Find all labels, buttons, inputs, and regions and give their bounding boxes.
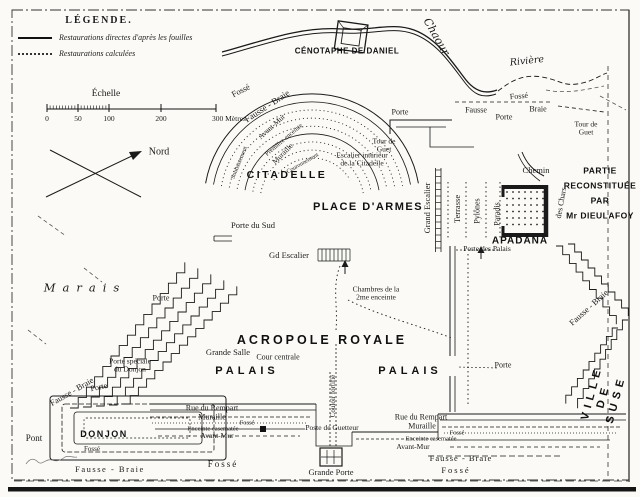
legend-item-restaurations-directes: Restaurations directes d'après les fouil… xyxy=(18,33,238,42)
east-walls xyxy=(450,246,497,412)
label-fausse-braie-sud: Fausse - Braie xyxy=(75,465,145,475)
north-gate-walls xyxy=(390,102,604,147)
label-fosse-nord: Fossé xyxy=(510,92,529,103)
scale-tick-300-M-tres-: 300 Mètres. xyxy=(212,114,248,123)
compass-north xyxy=(46,150,142,197)
label-porte-ouest: Porte xyxy=(153,295,170,304)
scale-heading: Échelle xyxy=(66,89,146,99)
susa-map-page: LÉGENDE. Restaurations directes d'après … xyxy=(0,0,640,497)
label-marais: Marais xyxy=(44,282,127,295)
label-partie-reconstituee: PARTIE RECONSTITUÉE PAR Mr DIEULAFOY xyxy=(564,163,637,223)
label-cenotaphe-de-daniel: CÉNOTAPHE DE DANIEL xyxy=(295,48,399,57)
scale-tick-100: 100 xyxy=(103,114,114,123)
dotted-line-swatch xyxy=(18,53,52,55)
dotted-paths xyxy=(214,236,452,338)
label-fosse-sud-ouest: Fossé xyxy=(208,459,239,469)
grand-staircase xyxy=(436,168,442,252)
label-gd-escalier: Gd Escalier xyxy=(269,251,309,261)
label-tour-de-guet-ne: Tour de Guet xyxy=(574,121,597,138)
label-fosse-petit-ouest: Fossé xyxy=(240,419,255,426)
label-muraille-ouest: Muraille xyxy=(198,414,226,423)
legend-heading: LÉGENDE. xyxy=(18,15,180,26)
label-chemin: Chemin xyxy=(523,166,550,176)
label-escalier-interieur: Escalier intérieur de la Citadelle xyxy=(336,152,387,169)
label-fausse-nord: Fausse xyxy=(465,107,487,116)
label-porte-speciale-donjon: Porte spéciale du Donjon xyxy=(109,358,151,375)
label-fosse-sud-est: Fossé xyxy=(441,466,470,476)
legend-item-restaurations-calculees: Restaurations calculées xyxy=(18,49,238,58)
label-fosse-donjon: Fossé xyxy=(84,446,100,454)
label-grand-escalier-v: Grand Escalier xyxy=(423,183,433,234)
label-braie-nord: Braie xyxy=(529,106,546,115)
label-fausse-braie-sud-est: Fausse - Braie xyxy=(430,454,493,464)
label-terrasse: Terrasse xyxy=(453,195,463,223)
label-porte-nord-est: Porte xyxy=(496,114,513,123)
label-grande-salle: Grande Salle xyxy=(206,348,250,358)
label-couloir-fortifie: Couloir fortifié xyxy=(330,375,338,418)
label-pont: Pont xyxy=(26,433,43,443)
label-chambres: Chambres de la 2me enceinte xyxy=(353,286,400,303)
label-avant-mur-ouest: Avant-Mur xyxy=(200,432,233,440)
label-porte-nord: Porte xyxy=(392,109,409,118)
label-donjon: DONJON xyxy=(80,429,128,439)
legend: LÉGENDE. Restaurations directes d'après … xyxy=(18,15,238,58)
stepped-ramparts xyxy=(70,244,628,408)
label-paradis: Paradis xyxy=(494,202,503,226)
label-acropole-royale: ACROPOLE ROYALE xyxy=(237,333,407,347)
apadana-column-grid xyxy=(506,191,544,225)
scale-tick-0: 0 xyxy=(45,114,49,123)
label-avant-mur-est: Avant-Mur xyxy=(396,443,429,451)
scale-bar xyxy=(47,104,216,112)
label-grande-porte: Grande Porte xyxy=(308,468,353,478)
label-nord: Nord xyxy=(149,146,170,157)
label-cour-centrale: Cour centrale xyxy=(256,354,299,363)
label-poste-de-guetteur: Poste de Guetteur xyxy=(305,424,358,432)
label-palais-ouest: PALAIS xyxy=(215,365,279,377)
scale-tick-50: 50 xyxy=(74,114,82,123)
label-citadelle: CITADELLE xyxy=(247,170,328,182)
label-porte-est: Porte xyxy=(495,362,512,371)
label-palais-est: PALAIS xyxy=(378,365,442,377)
label-porte-des-palais: Porte des Palais xyxy=(463,245,511,253)
label-muraille-est: Muraille xyxy=(408,423,436,432)
label-place-darmes: PLACE D'ARMES xyxy=(313,201,423,213)
solid-line-swatch xyxy=(18,37,52,39)
label-pylones: Pylônes xyxy=(474,198,483,223)
label-porte-du-sud: Porte du Sud xyxy=(231,221,275,231)
scale-tick-200: 200 xyxy=(155,114,166,123)
